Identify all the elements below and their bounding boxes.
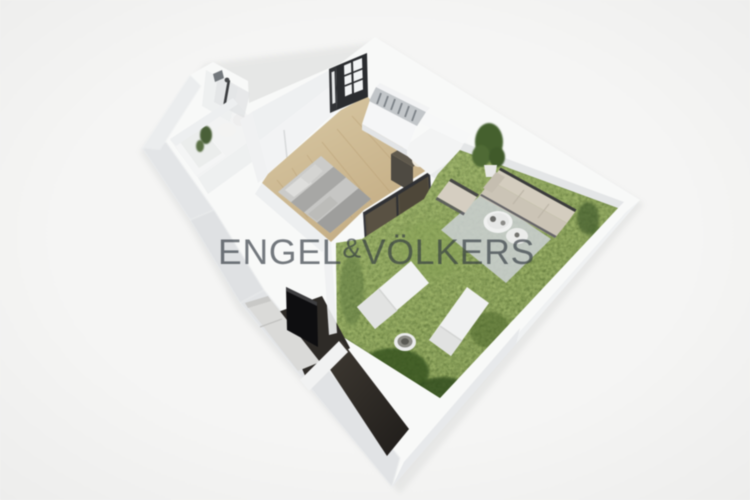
svg-text:ENGEL&VÖLKERS: ENGEL&VÖLKERS	[218, 232, 535, 272]
